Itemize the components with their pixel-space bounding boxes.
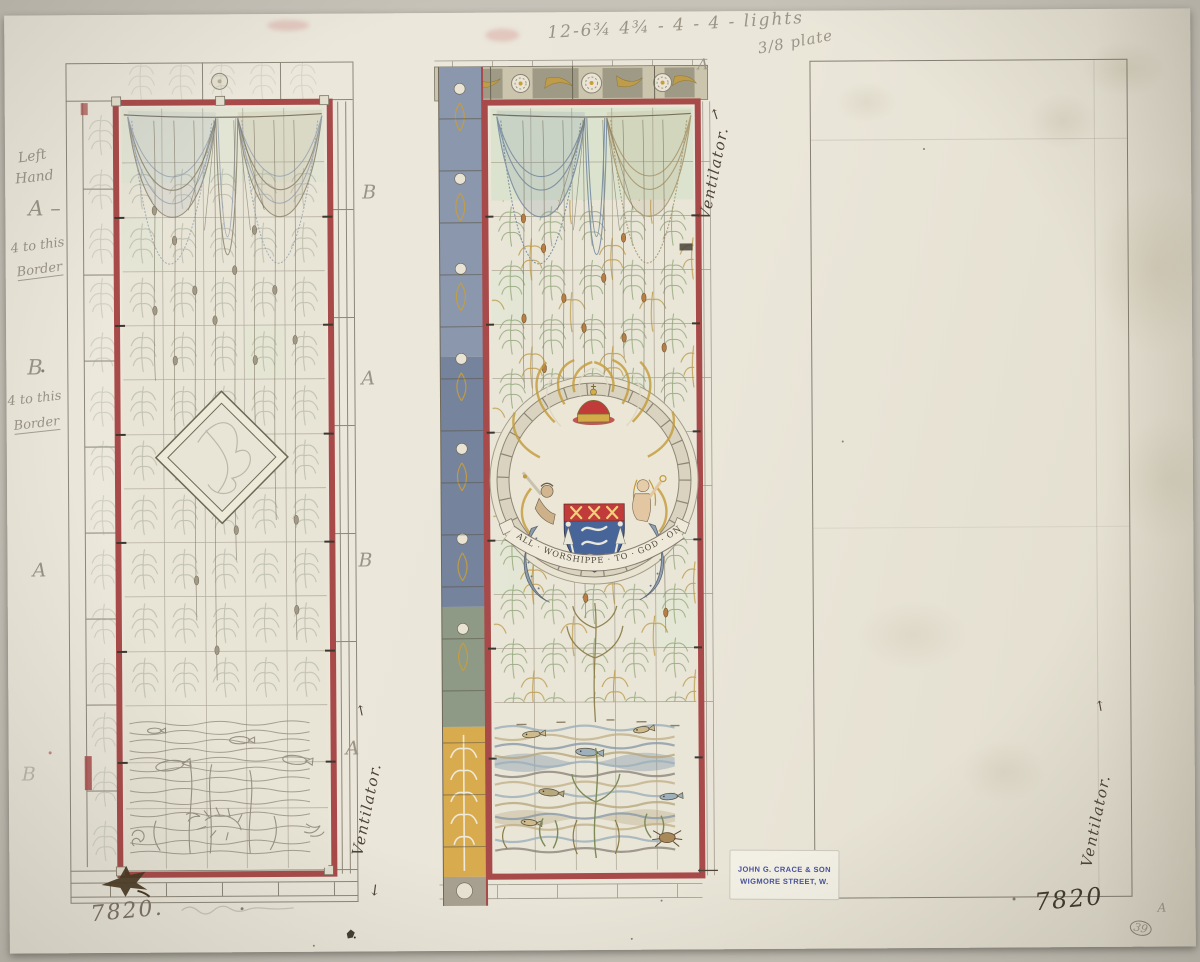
speck (313, 945, 315, 947)
corner-circled-number: 39 (1130, 917, 1152, 936)
maker-stamp: JOHN G. CRACE & SON WIGMORE STREET, W. (729, 850, 839, 900)
top-plate-note: 3/8 plate (756, 26, 834, 57)
mullion-letter: B (362, 181, 376, 203)
left-margin-note: Border (13, 414, 60, 435)
arrow-down-icon: ↓ (367, 881, 382, 901)
faint-guide-line (813, 526, 1129, 529)
faint-guide-line (1093, 60, 1099, 896)
center-panel-floral-left-border (438, 67, 487, 906)
left-margin-note: Border (16, 260, 63, 282)
faint-guide-line (811, 138, 1127, 141)
stamp-line2: WIGMORE STREET, W. (740, 876, 828, 885)
mullion-letter: B (358, 549, 372, 571)
left-margin-note: 4 to this (7, 389, 62, 410)
ink-blot-bird (97, 855, 167, 900)
speck (1013, 897, 1016, 900)
left-margin-note: B (22, 763, 36, 785)
mullion-letter: A (361, 367, 375, 389)
speck (41, 369, 44, 372)
inventory-number-left: 7820. (90, 896, 165, 928)
corner-letter: A (1158, 901, 1167, 915)
speck (661, 900, 663, 902)
left-margin-note: 4 to this (10, 235, 65, 257)
left-margin-note: A – (28, 196, 60, 220)
artwork-scan: ALL · WORSHIPPE · TO · GOD · ONLY (0, 0, 1200, 962)
left-margin-note: B (27, 355, 43, 379)
ink-blot-small (343, 925, 359, 941)
left-margin-note: A (32, 559, 46, 581)
faint-inscription (180, 898, 330, 919)
left-margin-note: Hand (14, 167, 54, 187)
speck (631, 938, 633, 940)
circled-39: 39 (1128, 919, 1153, 938)
inventory-number-right: 7820 (1033, 882, 1104, 916)
paper-sheet: ALL · WORSHIPPE · TO · GOD · ONLY (4, 8, 1196, 953)
speck (842, 441, 844, 443)
pink-smudge (267, 20, 309, 31)
mullion-letter: A (346, 737, 360, 759)
left-margin-note: Left (17, 146, 47, 166)
stamp-line1: JOHN G. CRACE & SON (738, 864, 831, 873)
mullion-letter: A (697, 55, 708, 73)
arrow-left-icon: ⟵ (697, 861, 719, 879)
right-blank-panel (809, 59, 1132, 899)
speck (241, 907, 244, 910)
speck (923, 148, 925, 150)
speck (49, 751, 52, 754)
center-window-design: ALL · WORSHIPPE · TO · GOD · ONLY (432, 57, 722, 921)
left-window-design (65, 59, 368, 921)
pink-smudge (485, 28, 519, 41)
